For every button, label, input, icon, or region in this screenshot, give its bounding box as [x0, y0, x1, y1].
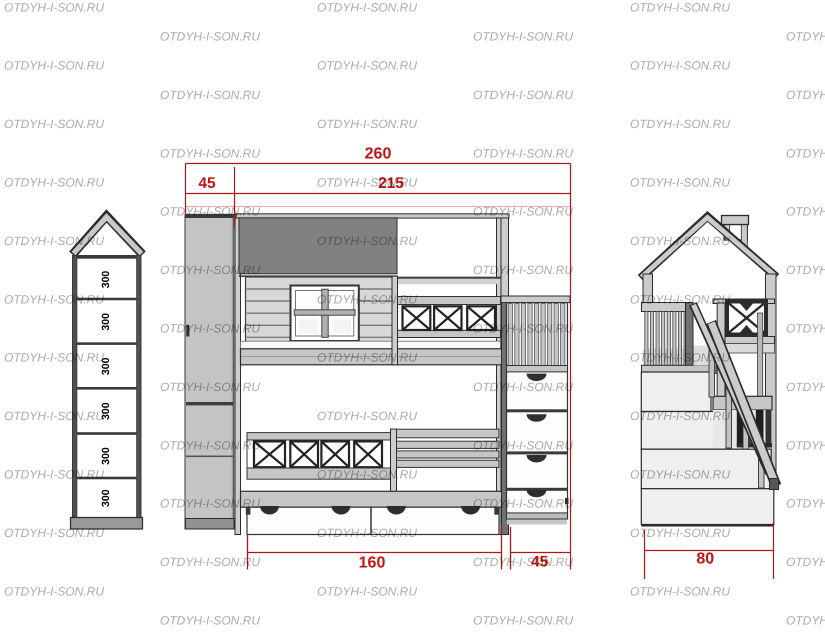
svg-text:OTDYH-I-SON.RU: OTDYH-I-SON.RU [160, 555, 260, 569]
svg-text:160: 160 [359, 555, 386, 572]
svg-text:OTDYH-I-SON.RU: OTDYH-I-SON.RU [630, 468, 730, 482]
svg-text:OTDYH-I-SON.RU: OTDYH-I-SON.RU [473, 614, 573, 628]
svg-text:300: 300 [100, 447, 112, 465]
svg-text:300: 300 [100, 271, 112, 289]
svg-text:OTDYH-I-SON.RU: OTDYH-I-SON.RU [786, 438, 825, 452]
svg-text:OTDYH-I-SON.RU: OTDYH-I-SON.RU [317, 234, 417, 248]
svg-text:OTDYH-I-SON.RU: OTDYH-I-SON.RU [786, 263, 825, 277]
svg-text:OTDYH-I-SON.RU: OTDYH-I-SON.RU [4, 176, 104, 190]
svg-text:OTDYH-I-SON.RU: OTDYH-I-SON.RU [786, 322, 825, 336]
svg-text:OTDYH-I-SON.RU: OTDYH-I-SON.RU [786, 88, 825, 102]
svg-text:OTDYH-I-SON.RU: OTDYH-I-SON.RU [317, 526, 417, 540]
svg-text:OTDYH-I-SON.RU: OTDYH-I-SON.RU [317, 292, 417, 306]
svg-text:OTDYH-I-SON.RU: OTDYH-I-SON.RU [630, 0, 730, 14]
svg-text:45: 45 [198, 175, 216, 192]
svg-text:OTDYH-I-SON.RU: OTDYH-I-SON.RU [630, 409, 730, 423]
svg-text:300: 300 [100, 313, 112, 331]
svg-text:OTDYH-I-SON.RU: OTDYH-I-SON.RU [786, 380, 825, 394]
svg-text:OTDYH-I-SON.RU: OTDYH-I-SON.RU [160, 497, 260, 511]
svg-text:OTDYH-I-SON.RU: OTDYH-I-SON.RU [160, 322, 260, 336]
svg-text:OTDYH-I-SON.RU: OTDYH-I-SON.RU [786, 146, 825, 160]
svg-text:OTDYH-I-SON.RU: OTDYH-I-SON.RU [4, 468, 104, 482]
svg-text:OTDYH-I-SON.RU: OTDYH-I-SON.RU [473, 497, 573, 511]
svg-text:OTDYH-I-SON.RU: OTDYH-I-SON.RU [473, 438, 573, 452]
svg-text:OTDYH-I-SON.RU: OTDYH-I-SON.RU [630, 351, 730, 365]
svg-text:OTDYH-I-SON.RU: OTDYH-I-SON.RU [630, 234, 730, 248]
svg-text:OTDYH-I-SON.RU: OTDYH-I-SON.RU [473, 555, 573, 569]
svg-text:300: 300 [100, 489, 112, 507]
svg-text:OTDYH-I-SON.RU: OTDYH-I-SON.RU [317, 584, 417, 598]
svg-text:OTDYH-I-SON.RU: OTDYH-I-SON.RU [473, 263, 573, 277]
svg-text:OTDYH-I-SON.RU: OTDYH-I-SON.RU [630, 584, 730, 598]
svg-text:OTDYH-I-SON.RU: OTDYH-I-SON.RU [630, 176, 730, 190]
svg-text:OTDYH-I-SON.RU: OTDYH-I-SON.RU [630, 292, 730, 306]
svg-text:OTDYH-I-SON.RU: OTDYH-I-SON.RU [473, 322, 573, 336]
svg-text:OTDYH-I-SON.RU: OTDYH-I-SON.RU [4, 117, 104, 131]
svg-text:OTDYH-I-SON.RU: OTDYH-I-SON.RU [160, 146, 260, 160]
svg-text:OTDYH-I-SON.RU: OTDYH-I-SON.RU [473, 88, 573, 102]
svg-text:OTDYH-I-SON.RU: OTDYH-I-SON.RU [4, 584, 104, 598]
svg-text:OTDYH-I-SON.RU: OTDYH-I-SON.RU [160, 438, 260, 452]
svg-text:OTDYH-I-SON.RU: OTDYH-I-SON.RU [473, 30, 573, 44]
svg-text:80: 80 [696, 551, 714, 568]
svg-text:OTDYH-I-SON.RU: OTDYH-I-SON.RU [160, 205, 260, 219]
svg-text:OTDYH-I-SON.RU: OTDYH-I-SON.RU [317, 351, 417, 365]
svg-text:OTDYH-I-SON.RU: OTDYH-I-SON.RU [786, 614, 825, 628]
svg-text:OTDYH-I-SON.RU: OTDYH-I-SON.RU [317, 409, 417, 423]
svg-text:OTDYH-I-SON.RU: OTDYH-I-SON.RU [160, 380, 260, 394]
svg-text:OTDYH-I-SON.RU: OTDYH-I-SON.RU [786, 555, 825, 569]
svg-text:OTDYH-I-SON.RU: OTDYH-I-SON.RU [630, 117, 730, 131]
svg-text:OTDYH-I-SON.RU: OTDYH-I-SON.RU [317, 59, 417, 73]
svg-text:260: 260 [365, 146, 392, 163]
svg-text:OTDYH-I-SON.RU: OTDYH-I-SON.RU [4, 292, 104, 306]
svg-text:OTDYH-I-SON.RU: OTDYH-I-SON.RU [473, 146, 573, 160]
svg-text:OTDYH-I-SON.RU: OTDYH-I-SON.RU [160, 263, 260, 277]
svg-text:OTDYH-I-SON.RU: OTDYH-I-SON.RU [317, 176, 417, 190]
svg-text:OTDYH-I-SON.RU: OTDYH-I-SON.RU [786, 30, 825, 44]
svg-text:OTDYH-I-SON.RU: OTDYH-I-SON.RU [473, 380, 573, 394]
svg-text:OTDYH-I-SON.RU: OTDYH-I-SON.RU [630, 59, 730, 73]
svg-text:OTDYH-I-SON.RU: OTDYH-I-SON.RU [160, 88, 260, 102]
svg-text:OTDYH-I-SON.RU: OTDYH-I-SON.RU [786, 205, 825, 219]
svg-text:OTDYH-I-SON.RU: OTDYH-I-SON.RU [4, 0, 104, 14]
svg-text:OTDYH-I-SON.RU: OTDYH-I-SON.RU [4, 351, 104, 365]
svg-text:OTDYH-I-SON.RU: OTDYH-I-SON.RU [630, 526, 730, 540]
svg-text:OTDYH-I-SON.RU: OTDYH-I-SON.RU [317, 117, 417, 131]
svg-text:OTDYH-I-SON.RU: OTDYH-I-SON.RU [4, 409, 104, 423]
svg-text:OTDYH-I-SON.RU: OTDYH-I-SON.RU [4, 59, 104, 73]
svg-text:OTDYH-I-SON.RU: OTDYH-I-SON.RU [473, 205, 573, 219]
svg-text:OTDYH-I-SON.RU: OTDYH-I-SON.RU [4, 526, 104, 540]
svg-text:OTDYH-I-SON.RU: OTDYH-I-SON.RU [4, 234, 104, 248]
svg-text:OTDYH-I-SON.RU: OTDYH-I-SON.RU [317, 468, 417, 482]
svg-text:OTDYH-I-SON.RU: OTDYH-I-SON.RU [160, 30, 260, 44]
svg-text:OTDYH-I-SON.RU: OTDYH-I-SON.RU [317, 0, 417, 14]
svg-text:OTDYH-I-SON.RU: OTDYH-I-SON.RU [786, 497, 825, 511]
svg-text:OTDYH-I-SON.RU: OTDYH-I-SON.RU [160, 614, 260, 628]
